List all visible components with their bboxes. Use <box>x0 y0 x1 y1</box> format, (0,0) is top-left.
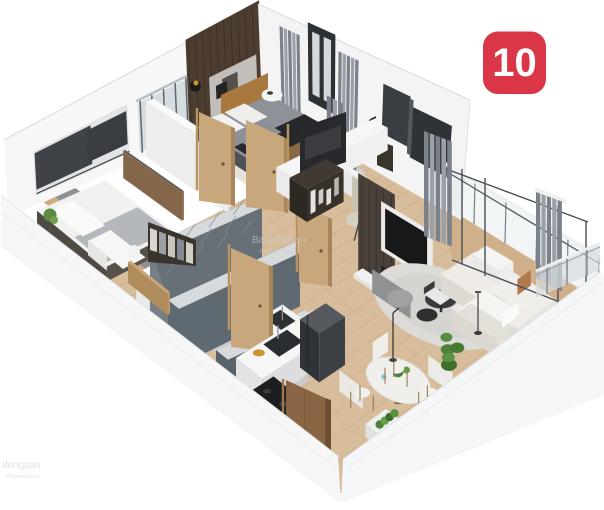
svg-text:10: 10 <box>492 41 537 85</box>
svg-text:Batdongsan: Batdongsan <box>252 235 305 246</box>
svg-text:PropertyGuru: PropertyGuru <box>260 249 293 255</box>
svg-text:dongsan: dongsan <box>2 460 40 471</box>
svg-text:PropertyGuru: PropertyGuru <box>6 474 39 480</box>
